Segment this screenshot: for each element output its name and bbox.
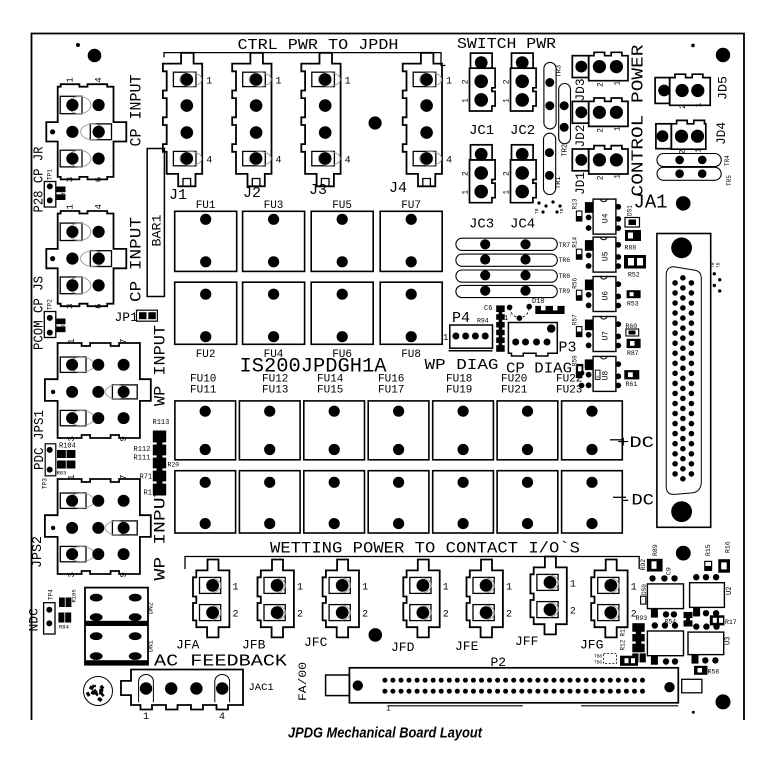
- svg-text:CP INPUT: CP INPUT: [128, 217, 146, 302]
- svg-text:2: 2: [506, 609, 512, 620]
- svg-text:R112: R112: [134, 446, 151, 454]
- svg-text:P2: P2: [491, 655, 507, 670]
- svg-text:TR3: TR3: [556, 65, 564, 78]
- svg-text:R88: R88: [625, 245, 637, 252]
- svg-text:2: 2: [233, 609, 239, 620]
- svg-text:JA1: JA1: [634, 192, 668, 214]
- svg-text:4: 4: [94, 77, 104, 82]
- svg-text:R17: R17: [725, 619, 737, 626]
- svg-text:TB: TB: [534, 208, 540, 214]
- svg-text:+DC: +DC: [617, 434, 654, 452]
- svg-text:JP1: JP1: [115, 310, 139, 325]
- svg-text:1: 1: [506, 582, 512, 593]
- svg-text:TR7: TR7: [559, 242, 571, 249]
- svg-text:2: 2: [596, 175, 605, 180]
- svg-text:2: 2: [503, 171, 512, 176]
- svg-text:JFB: JFB: [242, 638, 266, 653]
- svg-text:1: 1: [66, 77, 76, 82]
- svg-text:2: 2: [679, 104, 688, 109]
- svg-text:R83: R83: [57, 470, 67, 477]
- svg-text:P28 CP JR: P28 CP JR: [32, 146, 48, 213]
- svg-text:DN2: DN2: [148, 602, 155, 614]
- svg-text:FU19: FU19: [446, 385, 472, 397]
- svg-text:3: 3: [66, 177, 76, 182]
- svg-text:R113: R113: [153, 419, 170, 427]
- svg-text:R94: R94: [477, 318, 489, 325]
- svg-text:R53: R53: [627, 301, 639, 308]
- svg-text:U2: U2: [726, 587, 734, 595]
- svg-text:1: 1: [67, 339, 77, 344]
- svg-text:R81: R81: [60, 188, 67, 199]
- svg-text:1: 1: [206, 77, 212, 88]
- svg-text:SWITCH PWR: SWITCH PWR: [457, 36, 556, 53]
- svg-text:1: 1: [462, 98, 471, 103]
- svg-text:TP3: TP3: [42, 478, 49, 489]
- svg-text:2: 2: [596, 82, 605, 87]
- svg-text:TP4: TP4: [48, 589, 55, 600]
- svg-text:3: 3: [67, 572, 77, 577]
- svg-text:TB: TB: [559, 208, 565, 214]
- svg-text:4: 4: [219, 712, 225, 723]
- svg-text:J3: J3: [309, 182, 327, 199]
- svg-text:FU1: FU1: [196, 200, 216, 212]
- svg-text:1: 1: [386, 705, 391, 714]
- svg-text:J1: J1: [169, 187, 187, 204]
- svg-text:FU21: FU21: [501, 385, 528, 397]
- svg-text:4: 4: [446, 156, 452, 167]
- svg-text:U7: U7: [602, 331, 611, 341]
- svg-text:CP INPUT: CP INPUT: [128, 75, 146, 147]
- svg-text:JD5: JD5: [716, 76, 731, 100]
- svg-text:DS0: DS0: [641, 584, 648, 595]
- svg-text:C9: C9: [666, 567, 673, 575]
- svg-text:CONTROL POWER: CONTROL POWER: [630, 45, 649, 197]
- svg-text:AC FEEDBACK: AC FEEDBACK: [154, 652, 287, 671]
- svg-text:WP DIAG: WP DIAG: [425, 357, 499, 374]
- svg-text:FU3: FU3: [264, 200, 284, 212]
- svg-text:U5: U5: [602, 251, 611, 261]
- svg-text:1: 1: [233, 582, 239, 593]
- svg-text:TR2: TR2: [562, 144, 570, 157]
- svg-text:JFC: JFC: [304, 635, 328, 650]
- svg-text:TB6: TB6: [594, 660, 602, 666]
- svg-text:R71: R71: [140, 474, 153, 482]
- svg-text:U3: U3: [725, 637, 733, 645]
- svg-text:R57: R57: [572, 314, 579, 325]
- svg-text:1: 1: [695, 148, 704, 153]
- svg-text:2: 2: [570, 606, 576, 617]
- svg-text:2: 2: [596, 128, 605, 133]
- svg-text:JD4: JD4: [714, 122, 729, 145]
- svg-text:TR5: TR5: [726, 175, 733, 186]
- svg-text:2: 2: [462, 171, 471, 176]
- svg-text:JPS2: JPS2: [30, 536, 46, 568]
- svg-text:7: 7: [119, 339, 129, 344]
- svg-text:TB8: TB8: [594, 654, 602, 660]
- svg-text:JC2: JC2: [510, 123, 535, 139]
- svg-text:J4: J4: [389, 180, 407, 197]
- svg-text:R15: R15: [705, 544, 712, 556]
- svg-text:FU11: FU11: [190, 385, 217, 397]
- svg-text:9: 9: [119, 572, 129, 577]
- svg-text:R61: R61: [626, 381, 638, 388]
- svg-text:1: 1: [570, 579, 576, 590]
- svg-text:2: 2: [443, 609, 449, 620]
- svg-text:BAR1: BAR1: [150, 214, 165, 246]
- svg-text:R11: R11: [620, 625, 627, 636]
- svg-text:4: 4: [276, 156, 282, 167]
- svg-text:TR8: TR8: [559, 273, 571, 280]
- svg-text:DN1: DN1: [148, 640, 155, 652]
- svg-text:R84: R84: [59, 624, 70, 631]
- svg-text:D10: D10: [532, 298, 545, 306]
- svg-text:1: 1: [67, 475, 77, 480]
- svg-text:TP1: TP1: [47, 169, 54, 180]
- svg-text:R105: R105: [71, 589, 78, 602]
- svg-text:JAC1: JAC1: [249, 682, 274, 694]
- svg-text:FU7: FU7: [401, 200, 421, 212]
- svg-text:R16: R16: [725, 541, 732, 553]
- svg-text:R58: R58: [708, 669, 720, 676]
- svg-text:JFA: JFA: [176, 638, 200, 653]
- svg-text:JC4: JC4: [510, 217, 535, 233]
- svg-text:R104: R104: [59, 443, 76, 451]
- svg-text:TB: TB: [716, 262, 722, 268]
- svg-text:TR1: TR1: [555, 176, 563, 189]
- svg-text:1: 1: [462, 190, 471, 195]
- svg-text:WETTING POWER TO CONTACT I/O`S: WETTING POWER TO CONTACT I/O`S: [270, 540, 580, 558]
- svg-text:3: 3: [66, 304, 76, 309]
- svg-text:JD3: JD3: [573, 79, 588, 102]
- svg-text:WP INPUT: WP INPUT: [152, 325, 170, 406]
- svg-text:R56: R56: [572, 277, 579, 288]
- svg-text:2: 2: [297, 609, 303, 620]
- svg-text:JPDG Mechanical Board Layout: JPDG Mechanical Board Layout: [288, 726, 483, 742]
- svg-text:JC3: JC3: [469, 217, 494, 233]
- svg-text:R1: R1: [144, 490, 152, 498]
- svg-text:FU15: FU15: [317, 385, 343, 397]
- svg-text:R87: R87: [627, 350, 639, 357]
- svg-text:4: 4: [94, 204, 104, 209]
- svg-text:4: 4: [345, 156, 351, 167]
- svg-text:R20: R20: [168, 462, 180, 469]
- svg-text:FU2: FU2: [196, 349, 216, 361]
- svg-text:7: 7: [119, 475, 129, 480]
- svg-text:FU5: FU5: [332, 200, 352, 212]
- svg-text:R12: R12: [620, 639, 627, 650]
- svg-text:C6: C6: [484, 305, 492, 313]
- svg-text:R13: R13: [572, 198, 579, 209]
- svg-text:1: 1: [276, 77, 282, 88]
- svg-text:TB: TB: [710, 262, 716, 268]
- svg-text:6: 6: [94, 177, 104, 182]
- svg-text:1: 1: [503, 98, 512, 103]
- svg-text:1: 1: [503, 190, 512, 195]
- svg-text:1: 1: [443, 582, 449, 593]
- svg-text:2: 2: [462, 79, 471, 84]
- svg-text:R111: R111: [134, 455, 151, 463]
- svg-text:R89: R89: [652, 544, 659, 556]
- svg-text:NDC: NDC: [27, 608, 42, 632]
- svg-text:R52: R52: [628, 272, 640, 279]
- svg-text:R14: R14: [572, 236, 579, 247]
- svg-text:JFD: JFD: [391, 640, 415, 655]
- svg-text:U4: U4: [602, 213, 611, 223]
- svg-text:WP INPUT: WP INPUT: [152, 486, 170, 581]
- svg-text:1: 1: [362, 582, 368, 593]
- svg-text:2: 2: [362, 609, 368, 620]
- svg-text:1: 1: [613, 126, 622, 131]
- svg-text:CP DIAG: CP DIAG: [506, 361, 572, 378]
- svg-text:1: 1: [66, 204, 76, 209]
- svg-text:JD1: JD1: [573, 172, 588, 195]
- svg-text:TR9: TR9: [559, 288, 571, 295]
- svg-text:R82: R82: [60, 322, 67, 332]
- svg-text:U6: U6: [602, 291, 611, 301]
- svg-text:1: 1: [613, 81, 622, 86]
- svg-text:6: 6: [94, 304, 104, 309]
- svg-text:JC1: JC1: [469, 123, 494, 139]
- svg-text:FU13: FU13: [262, 385, 288, 397]
- svg-text:1: 1: [695, 102, 704, 107]
- svg-text:FU23: FU23: [556, 385, 582, 397]
- svg-text:3: 3: [67, 436, 77, 441]
- svg-text:1: 1: [297, 582, 303, 593]
- svg-text:1: 1: [143, 712, 149, 723]
- svg-text:1: 1: [631, 582, 637, 593]
- svg-text:FU8: FU8: [401, 349, 421, 361]
- svg-text:TP2: TP2: [47, 299, 54, 310]
- svg-text:1: 1: [613, 174, 622, 179]
- svg-text:1: 1: [443, 333, 448, 343]
- svg-text:R92: R92: [640, 559, 647, 571]
- svg-text:TR4: TR4: [724, 155, 731, 166]
- svg-text:JD2: JD2: [573, 125, 588, 148]
- svg-text:2: 2: [503, 79, 512, 84]
- svg-text:FA/00: FA/00: [298, 662, 310, 701]
- svg-text:CTRL PWR TO JPDH: CTRL PWR TO JPDH: [238, 37, 399, 54]
- svg-text:FU17: FU17: [378, 385, 404, 397]
- svg-text:JFG: JFG: [580, 638, 603, 653]
- svg-text:PCOM CP JS: PCOM CP JS: [32, 276, 48, 350]
- svg-text:DS1: DS1: [627, 205, 634, 216]
- svg-text:TR6: TR6: [559, 257, 571, 264]
- svg-text:-DC: -DC: [620, 492, 654, 510]
- svg-text:JFE: JFE: [455, 639, 479, 654]
- svg-text:U8: U8: [602, 371, 611, 381]
- svg-text:P3: P3: [559, 340, 577, 357]
- svg-text:1: 1: [446, 77, 452, 88]
- svg-text:R93: R93: [636, 615, 648, 622]
- svg-text:JFF: JFF: [515, 634, 538, 649]
- svg-text:9: 9: [119, 436, 129, 441]
- svg-text:4: 4: [206, 156, 212, 167]
- svg-text:J2: J2: [243, 185, 261, 202]
- svg-text:1: 1: [345, 77, 351, 88]
